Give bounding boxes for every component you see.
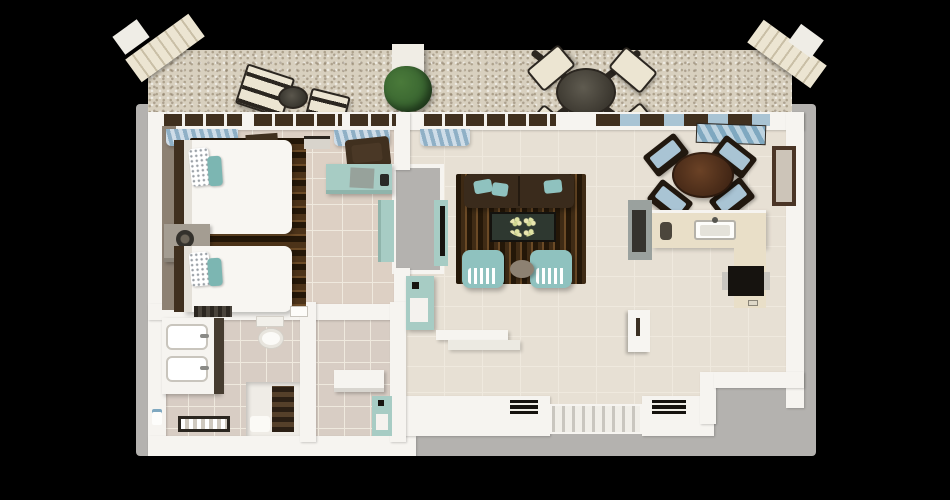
window-bedroom-small	[350, 114, 396, 126]
bed2-teal-pillow	[207, 258, 223, 287]
potted-plant	[384, 66, 432, 112]
minibar-label	[410, 298, 428, 322]
shower-drain-grate	[178, 416, 230, 432]
window-living-left	[424, 114, 556, 126]
oven-handle	[764, 272, 770, 290]
utility-cabinet-control	[378, 400, 384, 406]
closet-shelves	[272, 386, 294, 432]
vanity-cabinet-edge	[214, 318, 224, 394]
balcony-side-table	[278, 86, 308, 109]
bed1-teal-pillow	[207, 156, 223, 187]
bed2-headboard	[174, 246, 184, 312]
flower-centerpiece	[508, 216, 538, 237]
wall-bathroom-middle	[300, 302, 316, 442]
minibar-control	[412, 282, 419, 289]
wardrobe	[378, 200, 394, 262]
wall-bathroom-bottom	[148, 436, 416, 456]
desk-chair-seat	[351, 142, 383, 163]
kitchen-towel-holder	[660, 222, 672, 240]
ottoman	[510, 260, 534, 278]
window-bedroom-right	[254, 114, 342, 126]
toilet	[258, 328, 284, 349]
oven-handle	[722, 272, 728, 290]
wall-bathroom-right	[390, 302, 406, 442]
toilet-tank	[256, 316, 284, 327]
utility-cabinet-label	[376, 414, 388, 430]
faucet-2	[200, 366, 209, 370]
sofa-pillow	[543, 179, 562, 194]
kitchen-sink-basin	[700, 225, 730, 236]
wall-mirror	[772, 146, 796, 206]
tv-screen	[440, 206, 445, 256]
kitchen-faucet	[712, 217, 718, 223]
kitchen-door-handle	[636, 318, 640, 336]
desk-phone	[380, 174, 389, 186]
desk-blotter	[349, 167, 374, 188]
bathroom-shelf	[290, 306, 308, 317]
entry-floor-plate-right	[652, 400, 686, 414]
bathroom-bench	[334, 370, 384, 392]
wall-bottom-right	[714, 372, 804, 388]
dining-table	[672, 152, 734, 198]
window-bedroom-left	[164, 114, 242, 126]
toiletries	[152, 412, 162, 425]
sofa-cushion-split	[518, 176, 520, 206]
bed1-headboard	[174, 140, 184, 234]
kitchen-cabinet-inset	[632, 210, 646, 252]
sofa-pillow	[491, 182, 509, 197]
armchair-2-seat	[536, 268, 566, 284]
entry-floor-plate-left	[510, 400, 538, 414]
floor-plan-render	[0, 0, 950, 500]
bathroom-tray	[194, 306, 232, 317]
console-shelf-upper	[436, 330, 508, 340]
towel	[250, 416, 270, 432]
bedroom-shelf	[304, 136, 330, 149]
entry-doormat	[550, 404, 642, 434]
console-shelf-lower	[448, 340, 520, 350]
wall-outlet	[748, 300, 758, 306]
faucet-1	[200, 334, 209, 338]
cooktop-oven	[728, 266, 764, 296]
curtain-living	[420, 129, 470, 146]
outdoor-dining-table	[556, 68, 616, 116]
armchair-1-seat	[468, 268, 498, 284]
wall-bedroom-right	[394, 112, 410, 170]
